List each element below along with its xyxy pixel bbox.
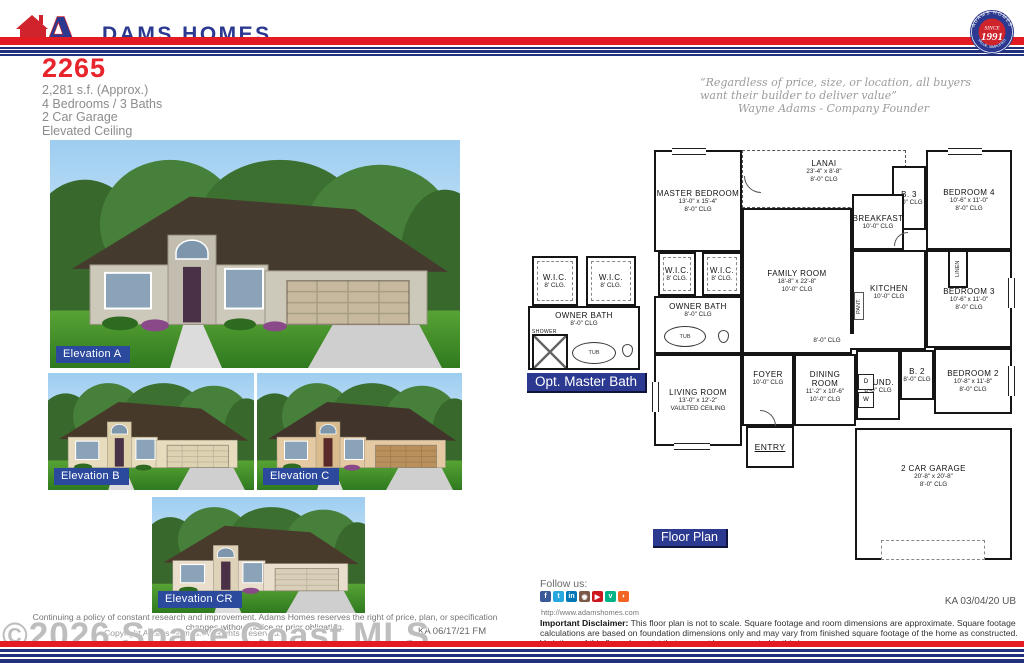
- floor-plan-label: Floor Plan: [653, 529, 728, 548]
- room-family: FAMILY ROOM 18'-8" x 22'-8" 10'-0" CLG: [742, 208, 852, 354]
- instagram-icon[interactable]: ◉: [579, 591, 590, 602]
- photo-elevation-a: Elevation A: [50, 140, 460, 368]
- photo-elevation-cr: Elevation CR: [152, 497, 365, 613]
- dryer-icon: D: [858, 374, 874, 390]
- room-bedroom4: BEDROOM 4 10'-6" x 11'-0" 8'-0" CLG: [926, 150, 1012, 250]
- window: [652, 382, 659, 412]
- window: [1008, 366, 1015, 396]
- window: [948, 148, 982, 155]
- elevation-cr-label: Elevation CR: [158, 591, 242, 608]
- room-bath2: B. 2 8'-0" CLG: [900, 350, 934, 400]
- garage-door: [881, 540, 985, 560]
- room-owner-bath: OWNER BATH 8'-0" CLG: [654, 296, 742, 354]
- washer-icon: W: [858, 392, 874, 408]
- window: [672, 148, 706, 155]
- elevation-a-label: Elevation A: [56, 346, 130, 363]
- room-entry: ENTRY: [746, 426, 794, 468]
- twitter-icon[interactable]: t: [553, 591, 564, 602]
- spec-sqft: 2,281 s.f. (Approx.): [42, 84, 162, 98]
- floor-plan-diagram: MASTER BEDROOM 13'-0" x 15'-4" 8'-0" CLG…: [648, 142, 1014, 562]
- elevation-c-label: Elevation C: [263, 468, 339, 485]
- opt-master-bath-label: Opt. Master Bath: [527, 373, 647, 393]
- social-icons: f t in ◉ ▶ v ◗: [540, 591, 629, 602]
- window: [674, 443, 710, 450]
- linen-closet: LINEN: [948, 250, 968, 288]
- elevation-b-label: Elevation B: [54, 468, 129, 485]
- plan-specs: 2,281 s.f. (Approx.) 4 Bedrooms / 3 Bath…: [42, 84, 162, 138]
- hall-ceiling-label: 8'-0" CLG: [798, 334, 856, 348]
- room-wic: W.I.C.8' CLG.: [658, 252, 696, 296]
- window: [1008, 278, 1015, 308]
- room-wic: W.I.C.8' CLG.: [702, 252, 742, 296]
- vine-icon[interactable]: v: [605, 591, 616, 602]
- spec-beds-baths: 4 Bedrooms / 3 Baths: [42, 98, 162, 112]
- shower-label: SHOWER: [532, 328, 557, 337]
- svg-text:1991: 1991: [981, 31, 1003, 43]
- footer-stripes: [0, 641, 1024, 663]
- room-living: LIVING ROOM 13'-0" x 12'-2" VAULTED CEIL…: [654, 354, 742, 446]
- rss-icon[interactable]: ◗: [618, 591, 629, 602]
- room-master-bedroom: MASTER BEDROOM 13'-0" x 15'-4" 8'-0" CLG: [654, 150, 742, 252]
- revision-stamp-right: KA 03/04/20 UB: [945, 596, 1016, 607]
- spec-garage: 2 Car Garage: [42, 111, 162, 125]
- photo-elevation-c: Elevation C: [257, 373, 462, 490]
- room-bedroom2: BEDROOM 2 10'-8" x 11'-8" 8'-0" CLG: [934, 348, 1012, 414]
- quote-attribution: Wayne Adams - Company Founder: [700, 102, 985, 115]
- room-bedroom3: BEDROOM 3 10'-6" x 11'-0" 8'-0" CLG: [926, 250, 1012, 348]
- since-1991-seal: ADAMS HOMES VALUE, SIMPLIFIED SINCE 1991: [969, 9, 1015, 60]
- model-number: 2265: [42, 53, 106, 84]
- facebook-icon[interactable]: f: [540, 591, 551, 602]
- photo-elevation-b: Elevation B: [48, 373, 254, 490]
- room-wic: W.I.C.8' CLG.: [586, 256, 636, 306]
- flyer-page: A DAMS HOMES ADAMS HOMES VALUE, SIMPLIFI…: [0, 0, 1024, 663]
- pantry-label: PANT.: [854, 292, 864, 320]
- tub-icon: TUB: [572, 342, 616, 364]
- founder-quote: “Regardless of price, size, or location,…: [700, 76, 985, 115]
- youtube-icon[interactable]: ▶: [592, 591, 603, 602]
- linkedin-icon[interactable]: in: [566, 591, 577, 602]
- shower-icon: [532, 334, 568, 370]
- opt-master-bath-diagram: W.I.C.8' CLG. W.I.C.8' CLG. OWNER BATH 8…: [528, 252, 640, 370]
- follow-us-label: Follow us:: [540, 578, 587, 590]
- tub-icon: TUB: [664, 326, 706, 347]
- header-stripes: [0, 37, 1024, 56]
- room-wic: W.I.C.8' CLG.: [532, 256, 578, 306]
- room-dining: DINING ROOM 11'-2" x 10'-6" 10'-0" CLG: [794, 354, 856, 426]
- website-link[interactable]: http://www.adamshomes.com: [541, 608, 639, 617]
- spec-ceiling: Elevated Ceiling: [42, 125, 162, 139]
- disclaimer-lead: Important Disclaimer:: [540, 618, 628, 628]
